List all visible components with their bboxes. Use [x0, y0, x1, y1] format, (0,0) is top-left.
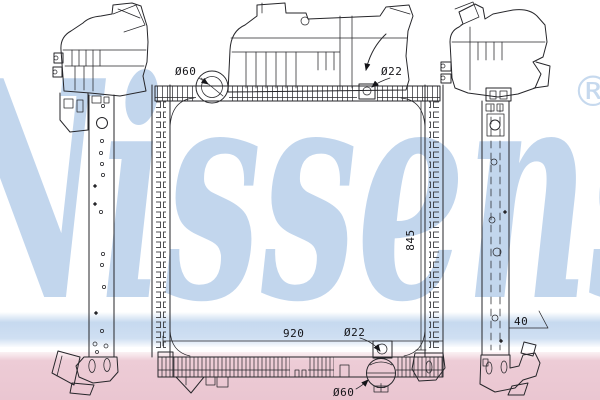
filler-neck-port — [196, 71, 228, 103]
drain-fitting — [373, 341, 392, 358]
bottom-outlet-funnel — [176, 377, 204, 393]
mounting-foot-right — [480, 342, 540, 395]
left-side-member — [152, 85, 170, 357]
flange-plate-right — [486, 88, 511, 101]
dim-label-top-left-port: Ø60 — [175, 65, 196, 78]
expansion-tank-front — [228, 3, 413, 92]
dim-label-core-width: 920 — [283, 327, 304, 340]
radiator-technical-drawing: Nissens ® — [0, 0, 600, 400]
tank-vent-hole — [301, 17, 309, 25]
expansion-tank-side — [61, 3, 148, 96]
dim-label-bracket-depth: 40 — [514, 315, 528, 328]
dim-label-bottom-drain: Ø60 — [333, 386, 354, 399]
radiator-right-side-view — [441, 2, 550, 395]
radiator-left-side-view — [52, 3, 148, 395]
side-column-right — [482, 101, 509, 355]
right-side-member — [425, 85, 443, 357]
mounting-foot-left — [52, 351, 118, 395]
side-column-left — [89, 95, 114, 357]
dim-label-top-right-port: Ø22 — [381, 65, 402, 78]
expansion-tank-side-right — [450, 2, 550, 97]
drain-port — [367, 359, 396, 393]
upper-bracket-left — [60, 93, 88, 132]
hose-stubs-right — [441, 62, 451, 83]
dim-label-bottom-outlet: Ø22 — [344, 326, 365, 339]
dim-label-core-height: 845 — [404, 229, 417, 250]
drawing-layer: 920 845 40 Ø60 Ø22 Ø22 Ø60 — [0, 0, 600, 400]
dimension-annotations: 920 845 40 Ø60 Ø22 Ø22 Ø60 — [163, 65, 548, 399]
